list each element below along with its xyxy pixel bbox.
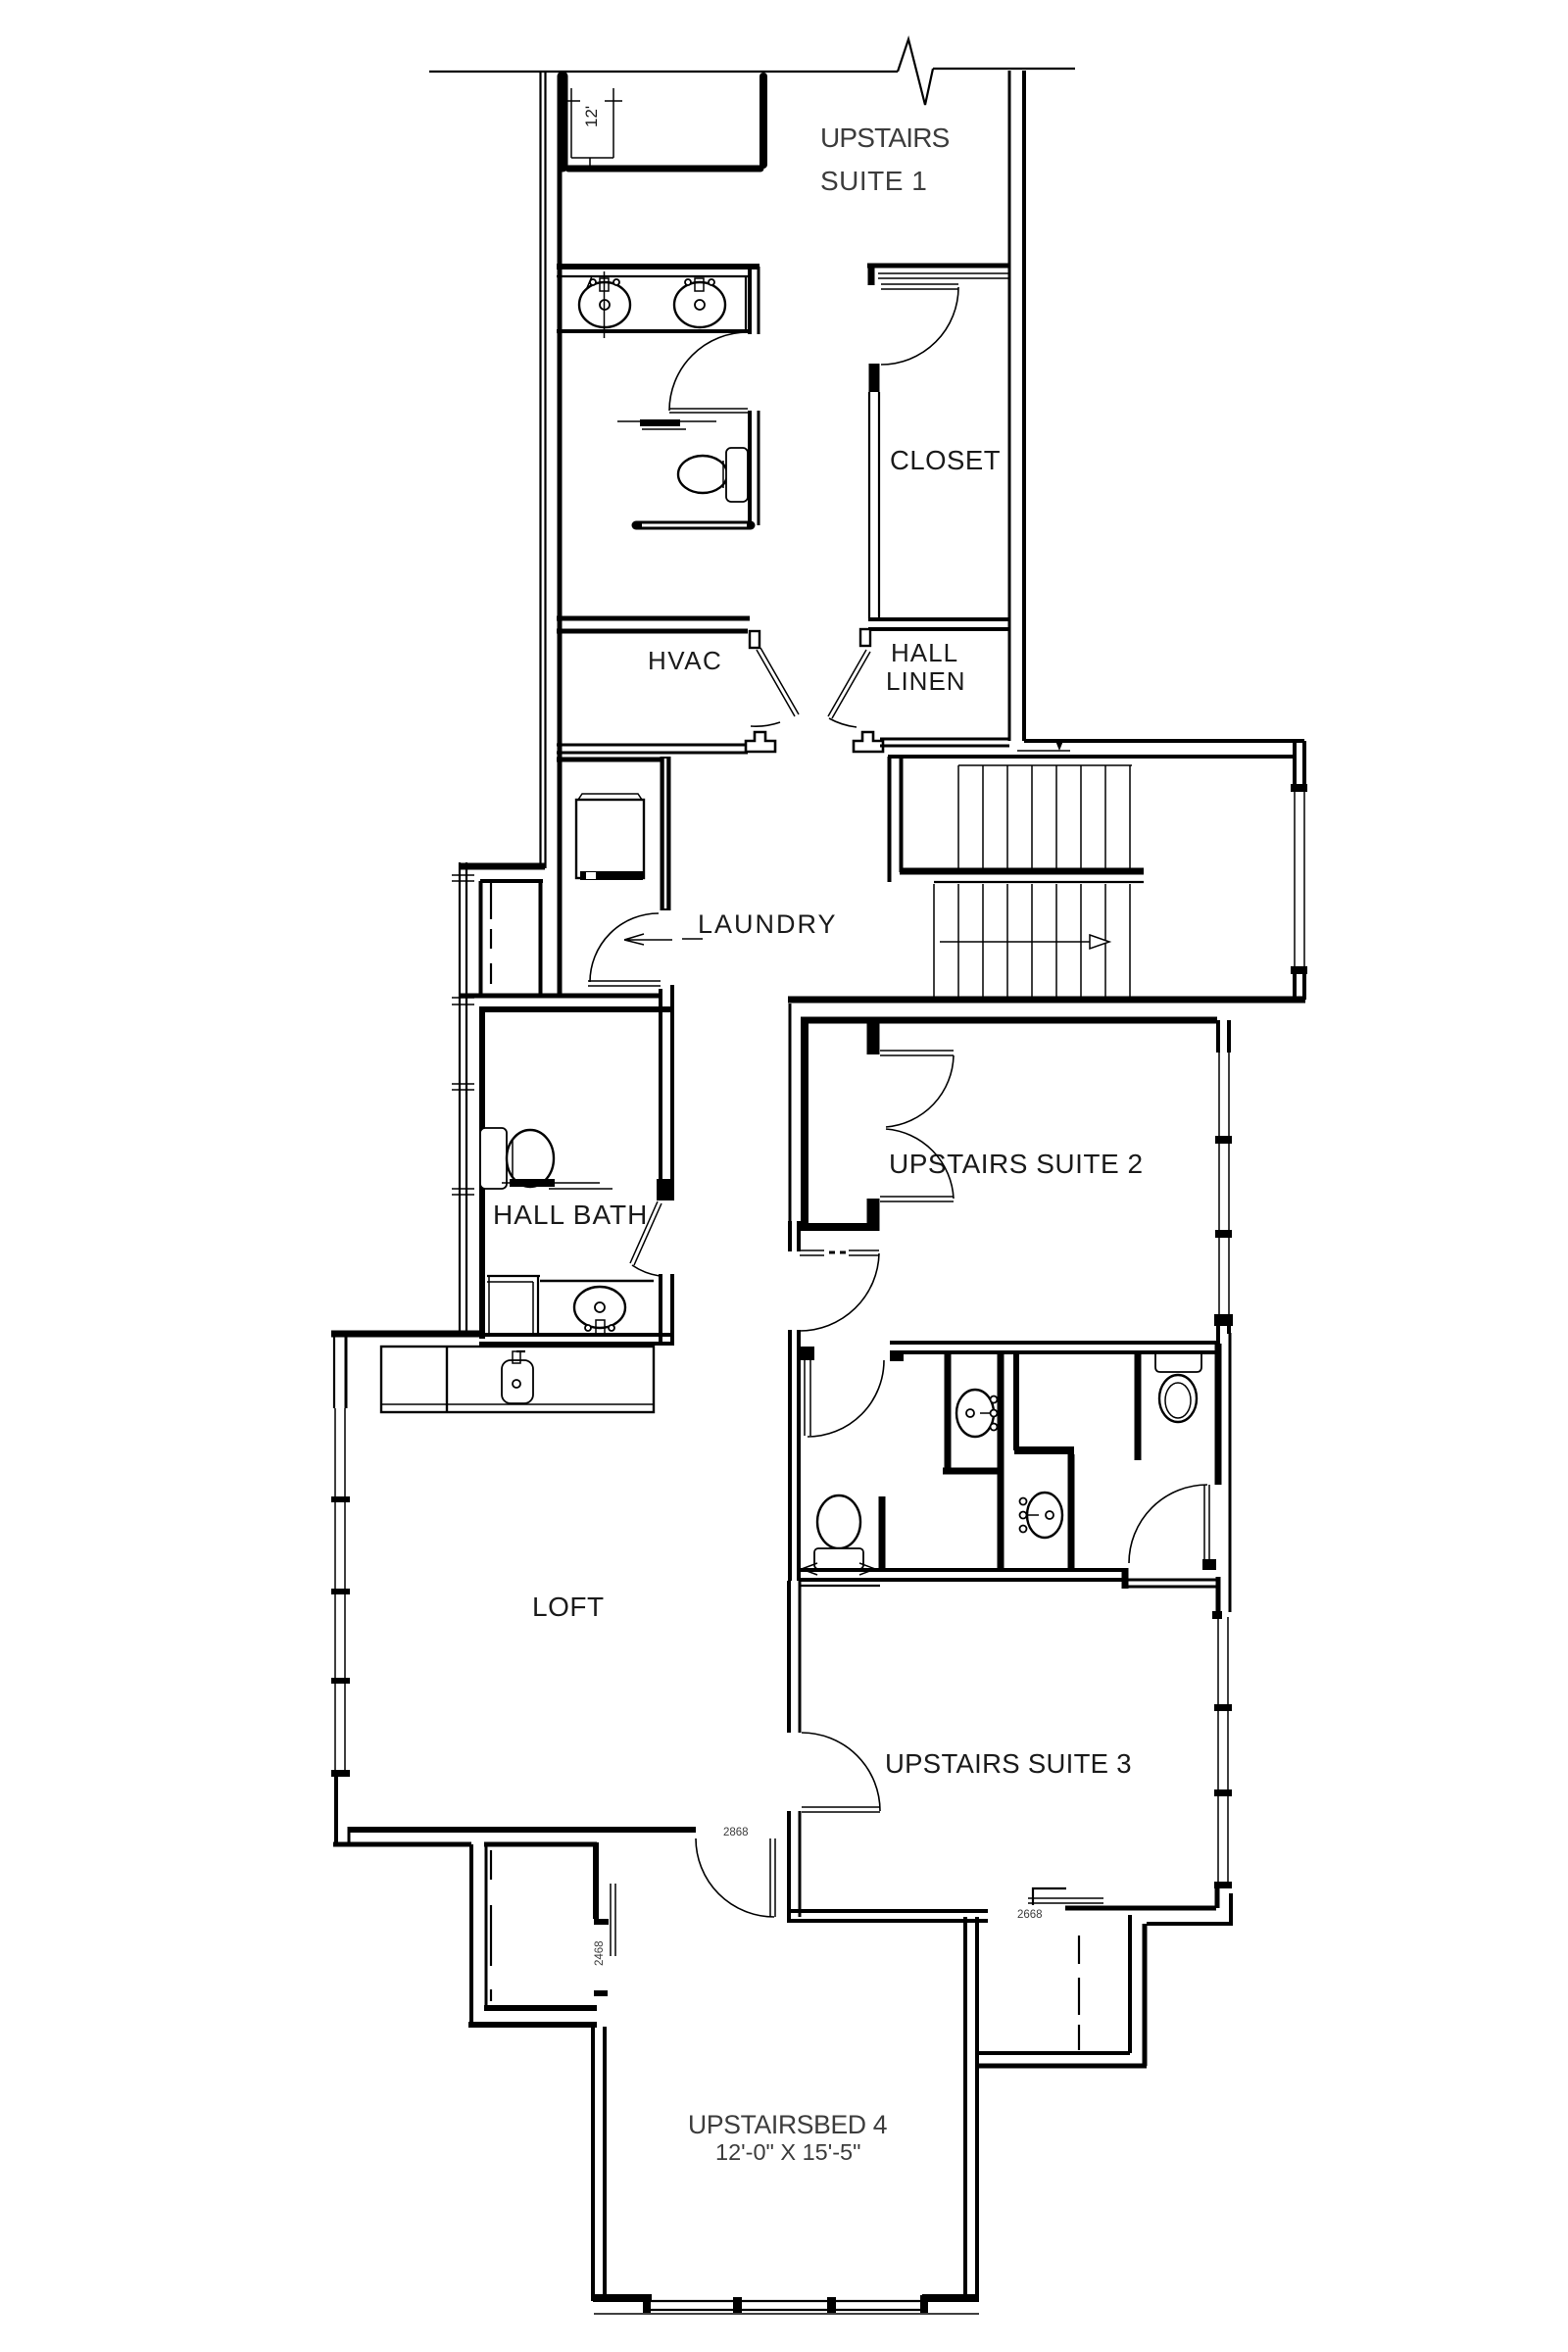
svg-text:UPSTAIRS SUITE 2: UPSTAIRS SUITE 2 xyxy=(889,1149,1144,1179)
svg-text:UPSTAIRS SUITE 3: UPSTAIRS SUITE 3 xyxy=(885,1748,1132,1779)
svg-text:CLOSET: CLOSET xyxy=(890,445,1001,475)
svg-text:HALL: HALL xyxy=(891,638,958,667)
svg-text:LAUNDRY: LAUNDRY xyxy=(698,909,838,939)
svg-text:LINEN: LINEN xyxy=(886,666,966,696)
svg-text:2668: 2668 xyxy=(1017,1909,1043,1921)
svg-text:12'-0" X 15'-5": 12'-0" X 15'-5" xyxy=(715,2139,860,2165)
svg-text:UPSTAIRSBED 4: UPSTAIRSBED 4 xyxy=(688,2110,887,2139)
svg-text:LOFT: LOFT xyxy=(532,1592,605,1622)
svg-text:HVAC: HVAC xyxy=(648,646,722,675)
svg-text:HALL BATH: HALL BATH xyxy=(493,1200,648,1230)
svg-text:UPSTAIRS: UPSTAIRS xyxy=(820,122,950,153)
svg-text:SUITE 1: SUITE 1 xyxy=(820,166,927,196)
svg-text:2468: 2468 xyxy=(594,1940,606,1966)
svg-text:12': 12' xyxy=(582,106,601,127)
svg-text:2868: 2868 xyxy=(723,1827,749,1838)
